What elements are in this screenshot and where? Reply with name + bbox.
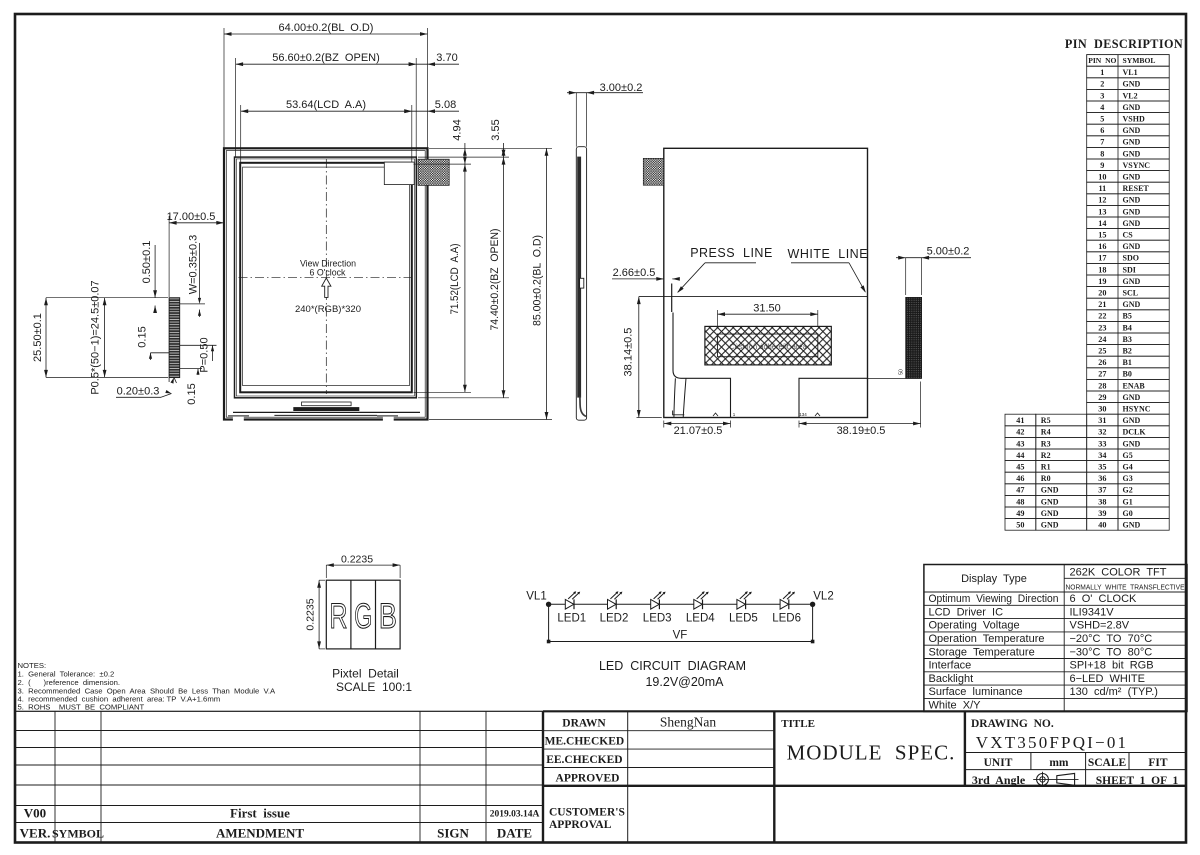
svg-text:LCD Driver IC: LCD Driver IC — [929, 606, 1004, 618]
svg-text:ShengNan: ShengNan — [660, 715, 716, 730]
svg-text:39: 39 — [1098, 509, 1106, 518]
svg-text:R: R — [330, 597, 348, 636]
svg-text:3.55: 3.55 — [490, 119, 502, 140]
svg-text:19.2V@20mA: 19.2V@20mA — [645, 675, 724, 689]
svg-text:AMENDMENT: AMENDMENT — [216, 826, 304, 841]
svg-text:LED2: LED2 — [600, 613, 629, 625]
svg-text:7: 7 — [1100, 138, 1104, 147]
svg-text:38.19±0.5: 38.19±0.5 — [837, 425, 886, 437]
svg-text:B3: B3 — [1123, 335, 1132, 344]
svg-text:SPI+18 bit RGB: SPI+18 bit RGB — [1070, 660, 1154, 672]
svg-text:SDI: SDI — [1123, 265, 1136, 274]
svg-text:240*(RGB)*320: 240*(RGB)*320 — [295, 304, 361, 315]
svg-text:Display Type: Display Type — [961, 573, 1027, 585]
svg-text:SYMBOL: SYMBOL — [1123, 56, 1156, 65]
svg-text:−30°C TO 80°C: −30°C TO 80°C — [1070, 646, 1153, 658]
svg-text:DRAWING NO.: DRAWING NO. — [971, 718, 1054, 730]
svg-text:21: 21 — [1098, 300, 1106, 309]
svg-text:8: 8 — [1100, 149, 1104, 158]
svg-text:32: 32 — [1098, 428, 1106, 437]
svg-text:G3: G3 — [1123, 474, 1133, 483]
svg-text:GND: GND — [1041, 521, 1059, 530]
svg-text:49: 49 — [1016, 509, 1024, 518]
svg-text:GND: GND — [1123, 521, 1141, 530]
svg-text:ILI9341V: ILI9341V — [1070, 606, 1115, 618]
svg-text:First issue: First issue — [230, 806, 290, 821]
svg-text:B5: B5 — [1123, 312, 1132, 321]
svg-text:−20°C TO 70°C: −20°C TO 70°C — [1070, 633, 1153, 645]
svg-text:31: 31 — [1098, 416, 1106, 425]
svg-text:UNIT: UNIT — [984, 757, 1013, 769]
svg-text:4: 4 — [1100, 103, 1104, 112]
svg-text:3.70: 3.70 — [436, 52, 457, 64]
svg-text:20: 20 — [1098, 289, 1106, 298]
svg-text:43: 43 — [1016, 439, 1024, 448]
svg-text:W=0.35±0.3: W=0.35±0.3 — [188, 235, 200, 295]
svg-text:Interface: Interface — [929, 660, 972, 672]
svg-text:6 O'clock: 6 O'clock — [310, 268, 347, 278]
svg-text:mm: mm — [1049, 757, 1069, 769]
svg-text:B2: B2 — [1123, 347, 1132, 356]
svg-text:42: 42 — [1016, 428, 1024, 437]
svg-text:12: 12 — [1098, 196, 1106, 205]
svg-text:HSYNC: HSYNC — [1123, 405, 1151, 414]
svg-text:P0.5*(50−1)=24.5±0.07: P0.5*(50−1)=24.5±0.07 — [90, 280, 102, 394]
svg-text:25.50±0.1: 25.50±0.1 — [32, 313, 44, 362]
svg-text:5.08: 5.08 — [435, 99, 456, 111]
svg-text:GND: GND — [1123, 196, 1141, 205]
svg-text:2019.03.14A: 2019.03.14A — [490, 810, 540, 820]
svg-text:G5: G5 — [1123, 451, 1133, 460]
svg-text:134: 134 — [799, 412, 807, 417]
svg-text:38: 38 — [1098, 497, 1106, 506]
svg-text:29: 29 — [1098, 393, 1106, 402]
svg-text:5.00±0.2: 5.00±0.2 — [927, 246, 970, 258]
svg-text:9: 9 — [1100, 161, 1104, 170]
svg-text:5. ROHS MUST BE COMPLIAN: 5. ROHS MUST BE COMPLIANT — [18, 703, 145, 712]
svg-text:DRAWN: DRAWN — [562, 718, 606, 730]
svg-text:LED3: LED3 — [643, 613, 672, 625]
svg-text:37: 37 — [1098, 486, 1106, 495]
svg-text:41: 41 — [1016, 416, 1024, 425]
svg-text:27: 27 — [1098, 370, 1106, 379]
svg-text:RESET: RESET — [1123, 184, 1150, 193]
svg-text:0.50±0.1: 0.50±0.1 — [141, 241, 153, 284]
svg-text:GND: GND — [1123, 103, 1141, 112]
svg-text:50: 50 — [899, 369, 905, 375]
svg-text:R5: R5 — [1041, 416, 1051, 425]
svg-text:VSHD=2.8V: VSHD=2.8V — [1070, 620, 1130, 632]
svg-text:GND: GND — [1123, 416, 1141, 425]
svg-text:Operating Voltage: Operating Voltage — [929, 620, 1020, 632]
svg-text:B: B — [379, 597, 397, 636]
svg-text:47: 47 — [1016, 486, 1024, 495]
svg-text:SCALE 100:1: SCALE 100:1 — [336, 680, 412, 694]
svg-text:VL2: VL2 — [813, 591, 833, 603]
svg-text:GND: GND — [1041, 486, 1059, 495]
svg-text:GND: GND — [1123, 207, 1141, 216]
svg-text:Storage Temperature: Storage Temperature — [929, 646, 1035, 658]
svg-text:SYMBOL: SYMBOL — [52, 827, 104, 841]
svg-text:Ćùŝhíòñ ádhéréñť áréá: Ćùŝhíòñ ádhéréñť áréá — [729, 342, 807, 351]
svg-text:11: 11 — [1098, 184, 1106, 193]
svg-text:44: 44 — [1016, 451, 1024, 460]
svg-text:VSYNC: VSYNC — [1123, 161, 1151, 170]
svg-text:10: 10 — [1098, 173, 1106, 182]
svg-text:PIN NO: PIN NO — [1088, 56, 1116, 65]
svg-text:SIGN: SIGN — [437, 826, 469, 841]
svg-text:2: 2 — [1100, 80, 1104, 89]
svg-text:EE.CHECKED: EE.CHECKED — [546, 754, 622, 766]
svg-text:LED CIRCUIT DIAGRAM: LED CIRCUIT DIAGRAM — [599, 659, 746, 673]
svg-text:B4: B4 — [1123, 323, 1132, 332]
svg-text:0.20±0.3: 0.20±0.3 — [117, 386, 160, 398]
svg-text:3rd Angle: 3rd Angle — [972, 773, 1026, 787]
svg-text:White X/Y: White X/Y — [929, 700, 982, 712]
svg-text:0.15: 0.15 — [186, 383, 198, 404]
svg-text:15: 15 — [1098, 231, 1106, 240]
svg-text:VSHD: VSHD — [1123, 115, 1145, 124]
svg-text:VL1: VL1 — [526, 591, 546, 603]
svg-text:APPROVAL: APPROVAL — [549, 819, 612, 831]
svg-text:1: 1 — [1100, 68, 1104, 77]
svg-text:130 cd/m² (TYP.): 130 cd/m² (TYP.) — [1070, 686, 1158, 698]
svg-text:24: 24 — [1098, 335, 1106, 344]
svg-text:GND: GND — [1123, 219, 1141, 228]
svg-text:G0: G0 — [1123, 509, 1133, 518]
svg-text:B1: B1 — [1123, 358, 1132, 367]
svg-text:GND: GND — [1123, 242, 1141, 251]
svg-text:GND: GND — [1123, 393, 1141, 402]
svg-text:23: 23 — [1098, 323, 1106, 332]
svg-text:0.15: 0.15 — [137, 326, 149, 347]
svg-text:GND: GND — [1123, 173, 1141, 182]
svg-text:35: 35 — [1098, 463, 1106, 472]
svg-text:85.00±0.2(BL O.D): 85.00±0.2(BL O.D) — [532, 235, 544, 326]
svg-text:17.00±0.5: 17.00±0.5 — [167, 211, 216, 223]
svg-text:R1: R1 — [1041, 463, 1051, 472]
svg-text:56.60±0.2(BZ OPEN): 56.60±0.2(BZ OPEN) — [272, 52, 380, 64]
svg-text:GND: GND — [1123, 277, 1141, 286]
svg-text:LED4: LED4 — [686, 613, 715, 625]
svg-text:VL1: VL1 — [1123, 68, 1138, 77]
svg-text:PRESS LINE: PRESS LINE — [690, 246, 773, 260]
svg-text:APPROVED: APPROVED — [556, 773, 620, 785]
svg-text:31.50: 31.50 — [753, 302, 781, 314]
svg-text:ME.CHECKED: ME.CHECKED — [545, 736, 625, 748]
svg-text:SCL: SCL — [1123, 289, 1139, 298]
svg-text:VL2: VL2 — [1123, 91, 1138, 100]
svg-text:R4: R4 — [1041, 428, 1051, 437]
svg-text:3: 3 — [1100, 91, 1104, 100]
svg-text:6−LED WHITE: 6−LED WHITE — [1070, 673, 1146, 685]
svg-text:38.14±0.5: 38.14±0.5 — [623, 328, 635, 377]
svg-text:Backlight: Backlight — [929, 673, 974, 685]
svg-text:V00: V00 — [24, 806, 46, 821]
svg-text:GND: GND — [1123, 300, 1141, 309]
svg-text:25: 25 — [1098, 347, 1106, 356]
svg-text:Pixtel Detail: Pixtel Detail — [332, 667, 399, 681]
svg-text:G: G — [354, 597, 372, 636]
svg-text:19: 19 — [1098, 277, 1106, 286]
svg-text:3.00±0.2: 3.00±0.2 — [600, 82, 643, 94]
svg-text:GND: GND — [1041, 509, 1059, 518]
svg-text:B0: B0 — [1123, 370, 1132, 379]
svg-text:G1: G1 — [1123, 497, 1133, 506]
svg-text:R2: R2 — [1041, 451, 1051, 460]
svg-text:64.00±0.2(BL O.D): 64.00±0.2(BL O.D) — [279, 22, 374, 34]
svg-text:G2: G2 — [1123, 486, 1133, 495]
svg-text:VXT350FPQI−01: VXT350FPQI−01 — [976, 733, 1128, 752]
svg-text:GND: GND — [1123, 149, 1141, 158]
svg-text:36: 36 — [1098, 474, 1106, 483]
svg-text:53.64(LCD A.A): 53.64(LCD A.A) — [286, 99, 366, 111]
svg-text:LED6: LED6 — [772, 613, 801, 625]
svg-text:71.52(LCD A.A): 71.52(LCD A.A) — [449, 244, 461, 315]
svg-text:13: 13 — [1098, 207, 1106, 216]
svg-text:PIN DESCRIPTION: PIN DESCRIPTION — [1065, 37, 1183, 51]
svg-text:0.2235: 0.2235 — [341, 553, 373, 565]
svg-text:6: 6 — [1100, 126, 1104, 135]
svg-text:28: 28 — [1098, 381, 1106, 390]
svg-text:GND: GND — [1123, 439, 1141, 448]
svg-text:17: 17 — [1098, 254, 1106, 263]
svg-text:Operation Temperature: Operation Temperature — [929, 633, 1045, 645]
svg-text:30: 30 — [1098, 405, 1106, 414]
svg-text:0.2235: 0.2235 — [305, 598, 317, 630]
svg-text:2.66±0.5: 2.66±0.5 — [613, 267, 656, 279]
svg-text:MODULE SPEC.: MODULE SPEC. — [787, 741, 956, 765]
svg-text:SCALE: SCALE — [1088, 757, 1127, 769]
svg-text:262K COLOR TFT: 262K COLOR TFT — [1070, 566, 1167, 578]
svg-text:4.94: 4.94 — [451, 119, 463, 140]
svg-text:R0: R0 — [1041, 474, 1051, 483]
svg-text:18: 18 — [1098, 265, 1106, 274]
svg-text:VF: VF — [673, 630, 688, 642]
svg-text:14: 14 — [1098, 219, 1106, 228]
svg-text:22: 22 — [1098, 312, 1106, 321]
svg-text:50: 50 — [1016, 521, 1024, 530]
svg-text:ENAB: ENAB — [1123, 381, 1146, 390]
svg-text:21.07±0.5: 21.07±0.5 — [674, 425, 723, 437]
svg-text:Optimum Viewing Direction: Optimum Viewing Direction — [929, 593, 1059, 605]
svg-text:45: 45 — [1016, 463, 1024, 472]
svg-text:NORMALLY WHITE TRANSFLECTIVE: NORMALLY WHITE TRANSFLECTIVE — [1066, 582, 1185, 591]
svg-text:P=0.50: P=0.50 — [199, 337, 211, 372]
svg-text:GND: GND — [1123, 126, 1141, 135]
svg-text:34: 34 — [1098, 451, 1106, 460]
svg-text:33: 33 — [1098, 439, 1106, 448]
svg-text:LED5: LED5 — [729, 613, 758, 625]
svg-text:VER.: VER. — [20, 826, 51, 841]
svg-text:TITLE: TITLE — [781, 718, 815, 730]
svg-text:48: 48 — [1016, 497, 1024, 506]
svg-text:DCLK: DCLK — [1123, 428, 1147, 437]
svg-text:26: 26 — [1098, 358, 1106, 367]
svg-text:LED1: LED1 — [557, 613, 586, 625]
svg-text:GND: GND — [1123, 80, 1141, 89]
svg-text:Surface luminance: Surface luminance — [929, 686, 1023, 698]
svg-text:CUSTOMER'S: CUSTOMER'S — [549, 807, 625, 819]
svg-text:SDO: SDO — [1123, 254, 1139, 263]
svg-text:6 O' CLOCK: 6 O' CLOCK — [1070, 593, 1138, 605]
svg-text:74.40±0.2(BZ OPEN): 74.40±0.2(BZ OPEN) — [489, 229, 501, 331]
svg-text:DATE: DATE — [497, 826, 532, 841]
svg-text:GND: GND — [1041, 497, 1059, 506]
svg-text:FIT: FIT — [1148, 757, 1168, 769]
svg-text:40: 40 — [1098, 521, 1106, 530]
svg-text:16: 16 — [1098, 242, 1106, 251]
svg-text:GND: GND — [1123, 138, 1141, 147]
svg-text:5: 5 — [1100, 115, 1104, 124]
svg-text:WHITE LINE: WHITE LINE — [788, 247, 869, 261]
svg-text:G4: G4 — [1123, 463, 1133, 472]
svg-text:SHEET 1 OF 1: SHEET 1 OF 1 — [1096, 775, 1179, 787]
svg-text:CS: CS — [1123, 231, 1134, 240]
svg-text:46: 46 — [1016, 474, 1024, 483]
svg-text:R3: R3 — [1041, 439, 1051, 448]
